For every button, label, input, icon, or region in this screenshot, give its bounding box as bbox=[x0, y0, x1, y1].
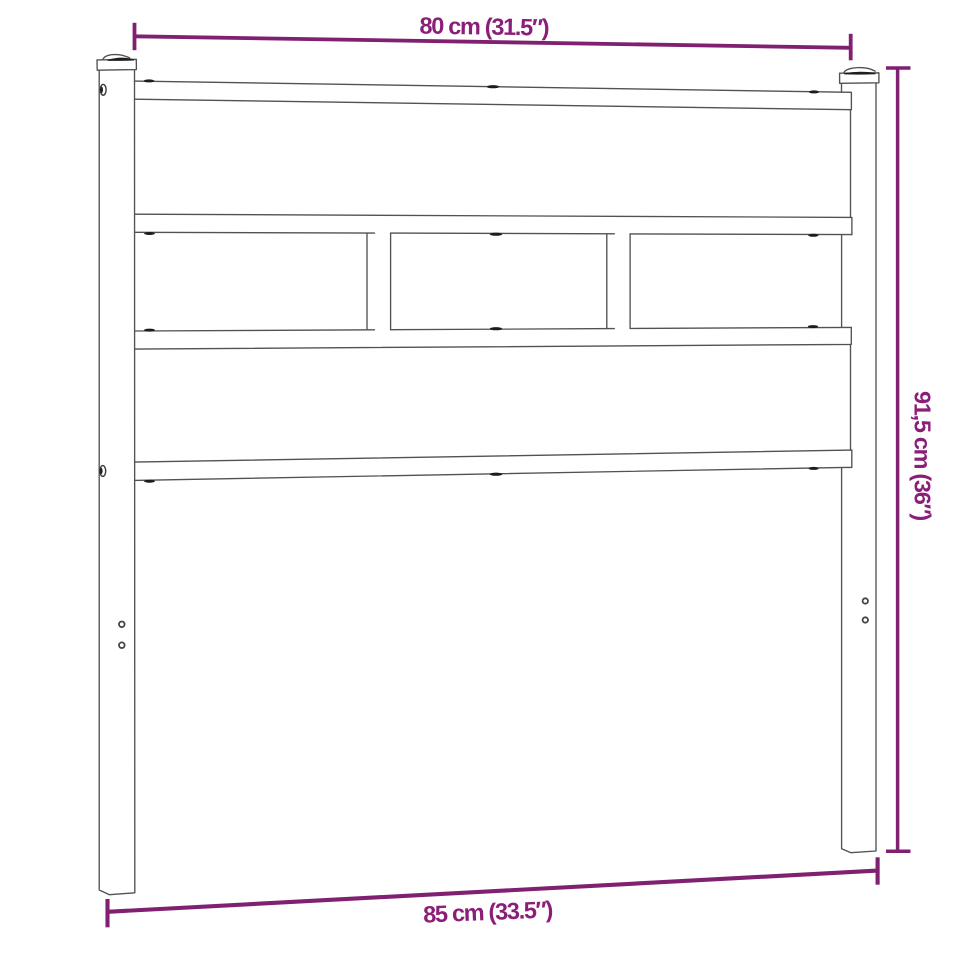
svg-text:91,5 cm (36″): 91,5 cm (36″) bbox=[910, 391, 936, 520]
svg-text:85 cm (33.5″): 85 cm (33.5″) bbox=[423, 896, 553, 927]
svg-text:80 cm (31.5″): 80 cm (31.5″) bbox=[419, 12, 549, 40]
